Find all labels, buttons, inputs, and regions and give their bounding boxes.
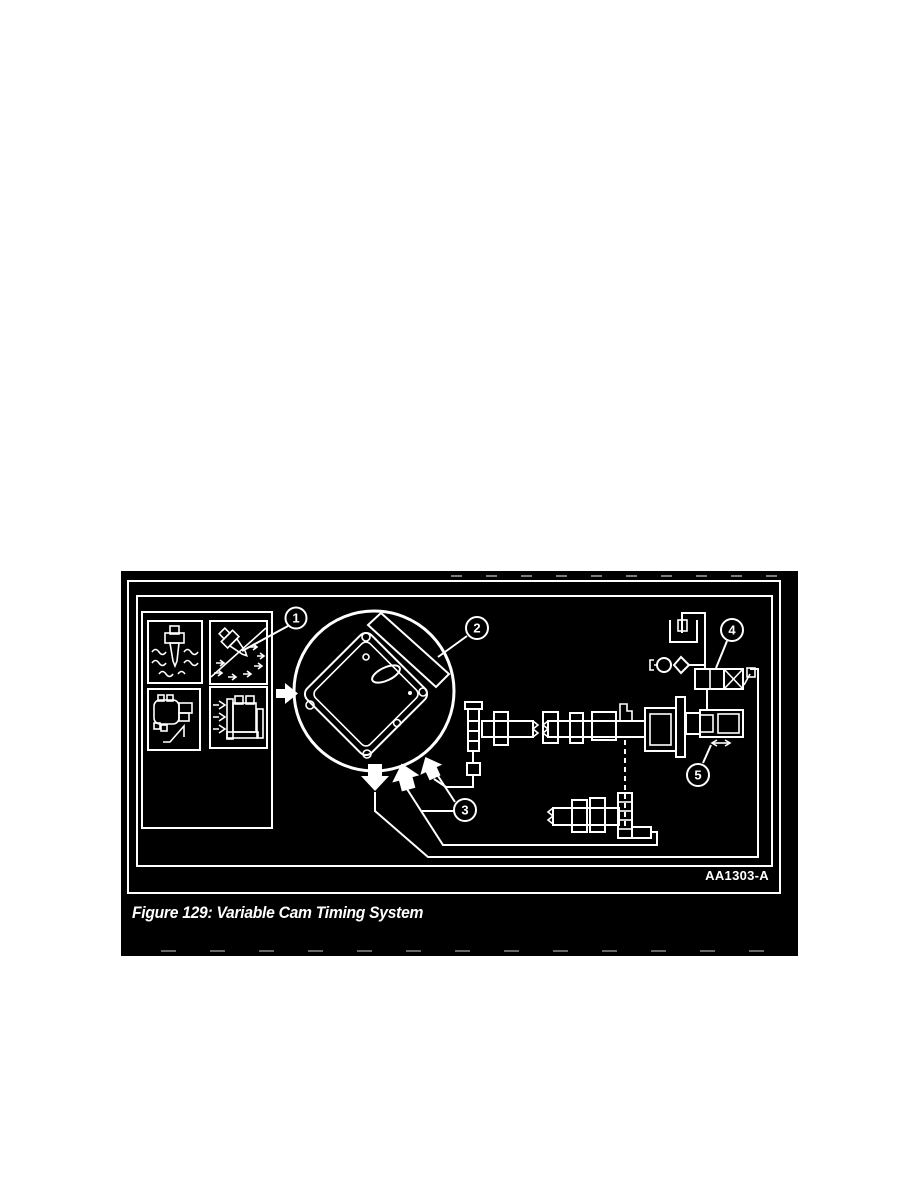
airflow-arrows xyxy=(214,644,264,680)
ecu-output-arrow xyxy=(361,764,389,791)
figure-caption: Figure 129: Variable Cam Timing System xyxy=(132,903,518,923)
cam-sensor-connector xyxy=(467,763,480,775)
sprocket-flange xyxy=(676,697,685,757)
pressure-sensor-icon xyxy=(210,687,267,748)
callout-1-number: 1 xyxy=(292,611,299,626)
callout-3-number: 3 xyxy=(461,803,468,818)
throttle-position-icon xyxy=(148,689,200,750)
variable-cam-timing-diagram: 1 xyxy=(121,571,798,956)
callout-3: 3 xyxy=(422,776,476,821)
callout-5: 5 xyxy=(687,745,711,786)
ecu-signal-arrows xyxy=(361,752,446,793)
air-temp-sensor-icon xyxy=(210,621,267,684)
crankshaft-assembly xyxy=(548,793,651,838)
callout-4: 4 xyxy=(716,619,743,668)
flow-arrows xyxy=(213,701,225,733)
callout-4-number: 4 xyxy=(728,623,736,638)
ecu-module xyxy=(294,611,454,771)
sensor-input-group xyxy=(142,612,298,828)
oil-supply-circuit xyxy=(650,613,705,673)
manual-page: { "figure": { "caption": "Figure 129: Va… xyxy=(0,0,918,1188)
figure-plate: 1 xyxy=(121,571,798,956)
crank-sensor-connector xyxy=(632,827,651,838)
callout-5-number: 5 xyxy=(694,768,701,783)
travel-arrow xyxy=(712,740,730,746)
check-valve xyxy=(674,657,689,673)
callout-2-number: 2 xyxy=(473,621,480,636)
signal-ramp-glyph xyxy=(163,726,184,742)
cam-sensor-wire xyxy=(434,775,473,787)
solenoid-valve xyxy=(695,668,755,710)
oil-pump xyxy=(657,658,671,672)
ecu-connector-band xyxy=(368,613,449,687)
ecu-circle xyxy=(294,611,454,771)
callout-2: 2 xyxy=(438,617,488,657)
cam-actuator xyxy=(700,710,743,746)
camshaft-assembly xyxy=(465,697,700,775)
coolant-temp-sensor-icon xyxy=(148,621,202,683)
ecu-screw-holes xyxy=(306,633,427,758)
callout-1: 1 xyxy=(242,608,307,652)
ecu-dot xyxy=(408,691,412,695)
diagram-part-code: AA1303-A xyxy=(705,868,769,883)
ecu-slot xyxy=(370,662,403,686)
